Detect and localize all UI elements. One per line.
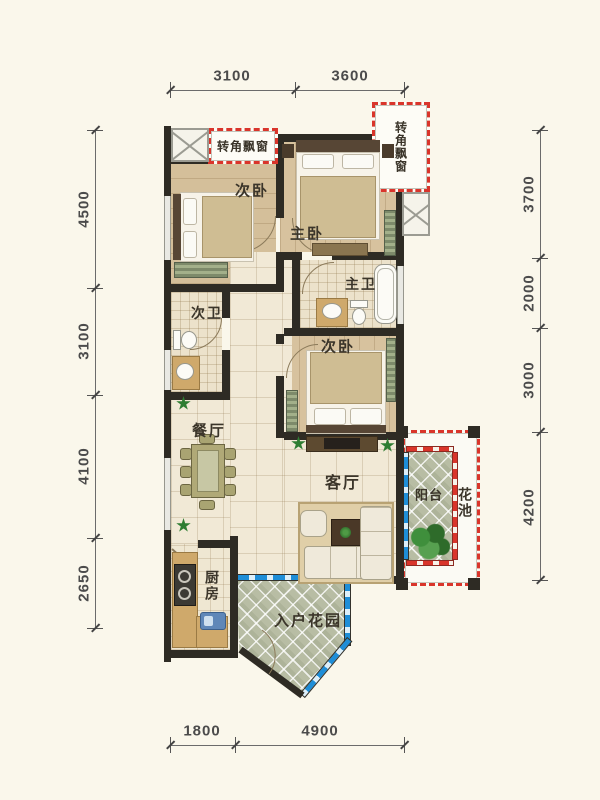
pillow (183, 198, 197, 225)
wardrobe (286, 390, 298, 432)
sink (322, 303, 342, 319)
bed-blanket (310, 352, 382, 404)
shaft-box (171, 128, 209, 162)
balcony-window-top (406, 446, 454, 452)
armchair (300, 510, 327, 537)
coffee-table-plant (340, 527, 351, 538)
window-strip (164, 196, 171, 260)
dining-chair (199, 500, 215, 510)
sink (176, 363, 194, 380)
nightstand (282, 144, 294, 158)
stove-burner (178, 587, 191, 600)
label-corner-bay-top: 转角飘窗 (217, 138, 269, 155)
window-strip (164, 458, 171, 530)
entry-garden-window-right (344, 578, 351, 646)
label-flower-bed: 花池 (455, 487, 475, 519)
bed-headboard (173, 194, 181, 260)
shaft-box (402, 192, 430, 236)
label-master-bath: 主卫 (345, 274, 377, 294)
entry-garden-floor (236, 580, 350, 696)
toilet (173, 330, 181, 350)
toilet-bowl (181, 331, 197, 349)
pillow (314, 408, 346, 425)
bed-blanket (202, 196, 252, 258)
label-bedroom-mid: 次卧 (321, 336, 355, 357)
label-dining: 餐厅 (192, 420, 226, 441)
dining-chair (224, 448, 236, 460)
window-strip (397, 266, 404, 324)
foot-bench (312, 243, 368, 256)
label-master-bedroom: 主卧 (290, 223, 324, 244)
bench (174, 262, 228, 278)
label-living: 客厅 (325, 469, 361, 493)
wardrobe (384, 210, 396, 256)
dining-table-glass (197, 450, 219, 492)
label-entry-garden: 入户花园 (274, 610, 342, 631)
pillow (302, 154, 334, 169)
label-second-bath: 次卫 (191, 303, 223, 323)
balcony-window-bottom (406, 560, 454, 566)
label-balcony: 阳台 (415, 485, 443, 504)
sofa-chaise (360, 506, 392, 580)
bed-headboard (296, 140, 380, 152)
toilet-bowl (352, 308, 366, 325)
label-kitchen: 厨房 (202, 570, 222, 602)
window-strip (164, 350, 171, 390)
kitchen-sink-basin (204, 616, 213, 626)
pillow (342, 154, 374, 169)
tv (324, 438, 360, 449)
wall-right-outer (396, 188, 404, 580)
floor-plan: 转角飘窗 转角飘窗 次卧 主卧 主卫 次卫 次卧 餐厅 客厅 阳台 花池 厨房 … (0, 0, 600, 800)
bed-headboard (306, 425, 386, 433)
pillow (183, 231, 197, 258)
balcony-plant (408, 522, 450, 560)
dining-chair (224, 484, 236, 496)
pillow (350, 408, 382, 425)
toilet (350, 300, 368, 308)
door-arc-master-bath (302, 262, 334, 294)
label-bedroom-top: 次卧 (235, 180, 269, 201)
dining-chair (224, 466, 236, 478)
wardrobe (386, 338, 396, 402)
bathtub-inner (377, 268, 394, 320)
stove-burner (178, 570, 191, 583)
label-corner-bay-right: 转角飘窗 (393, 121, 410, 173)
